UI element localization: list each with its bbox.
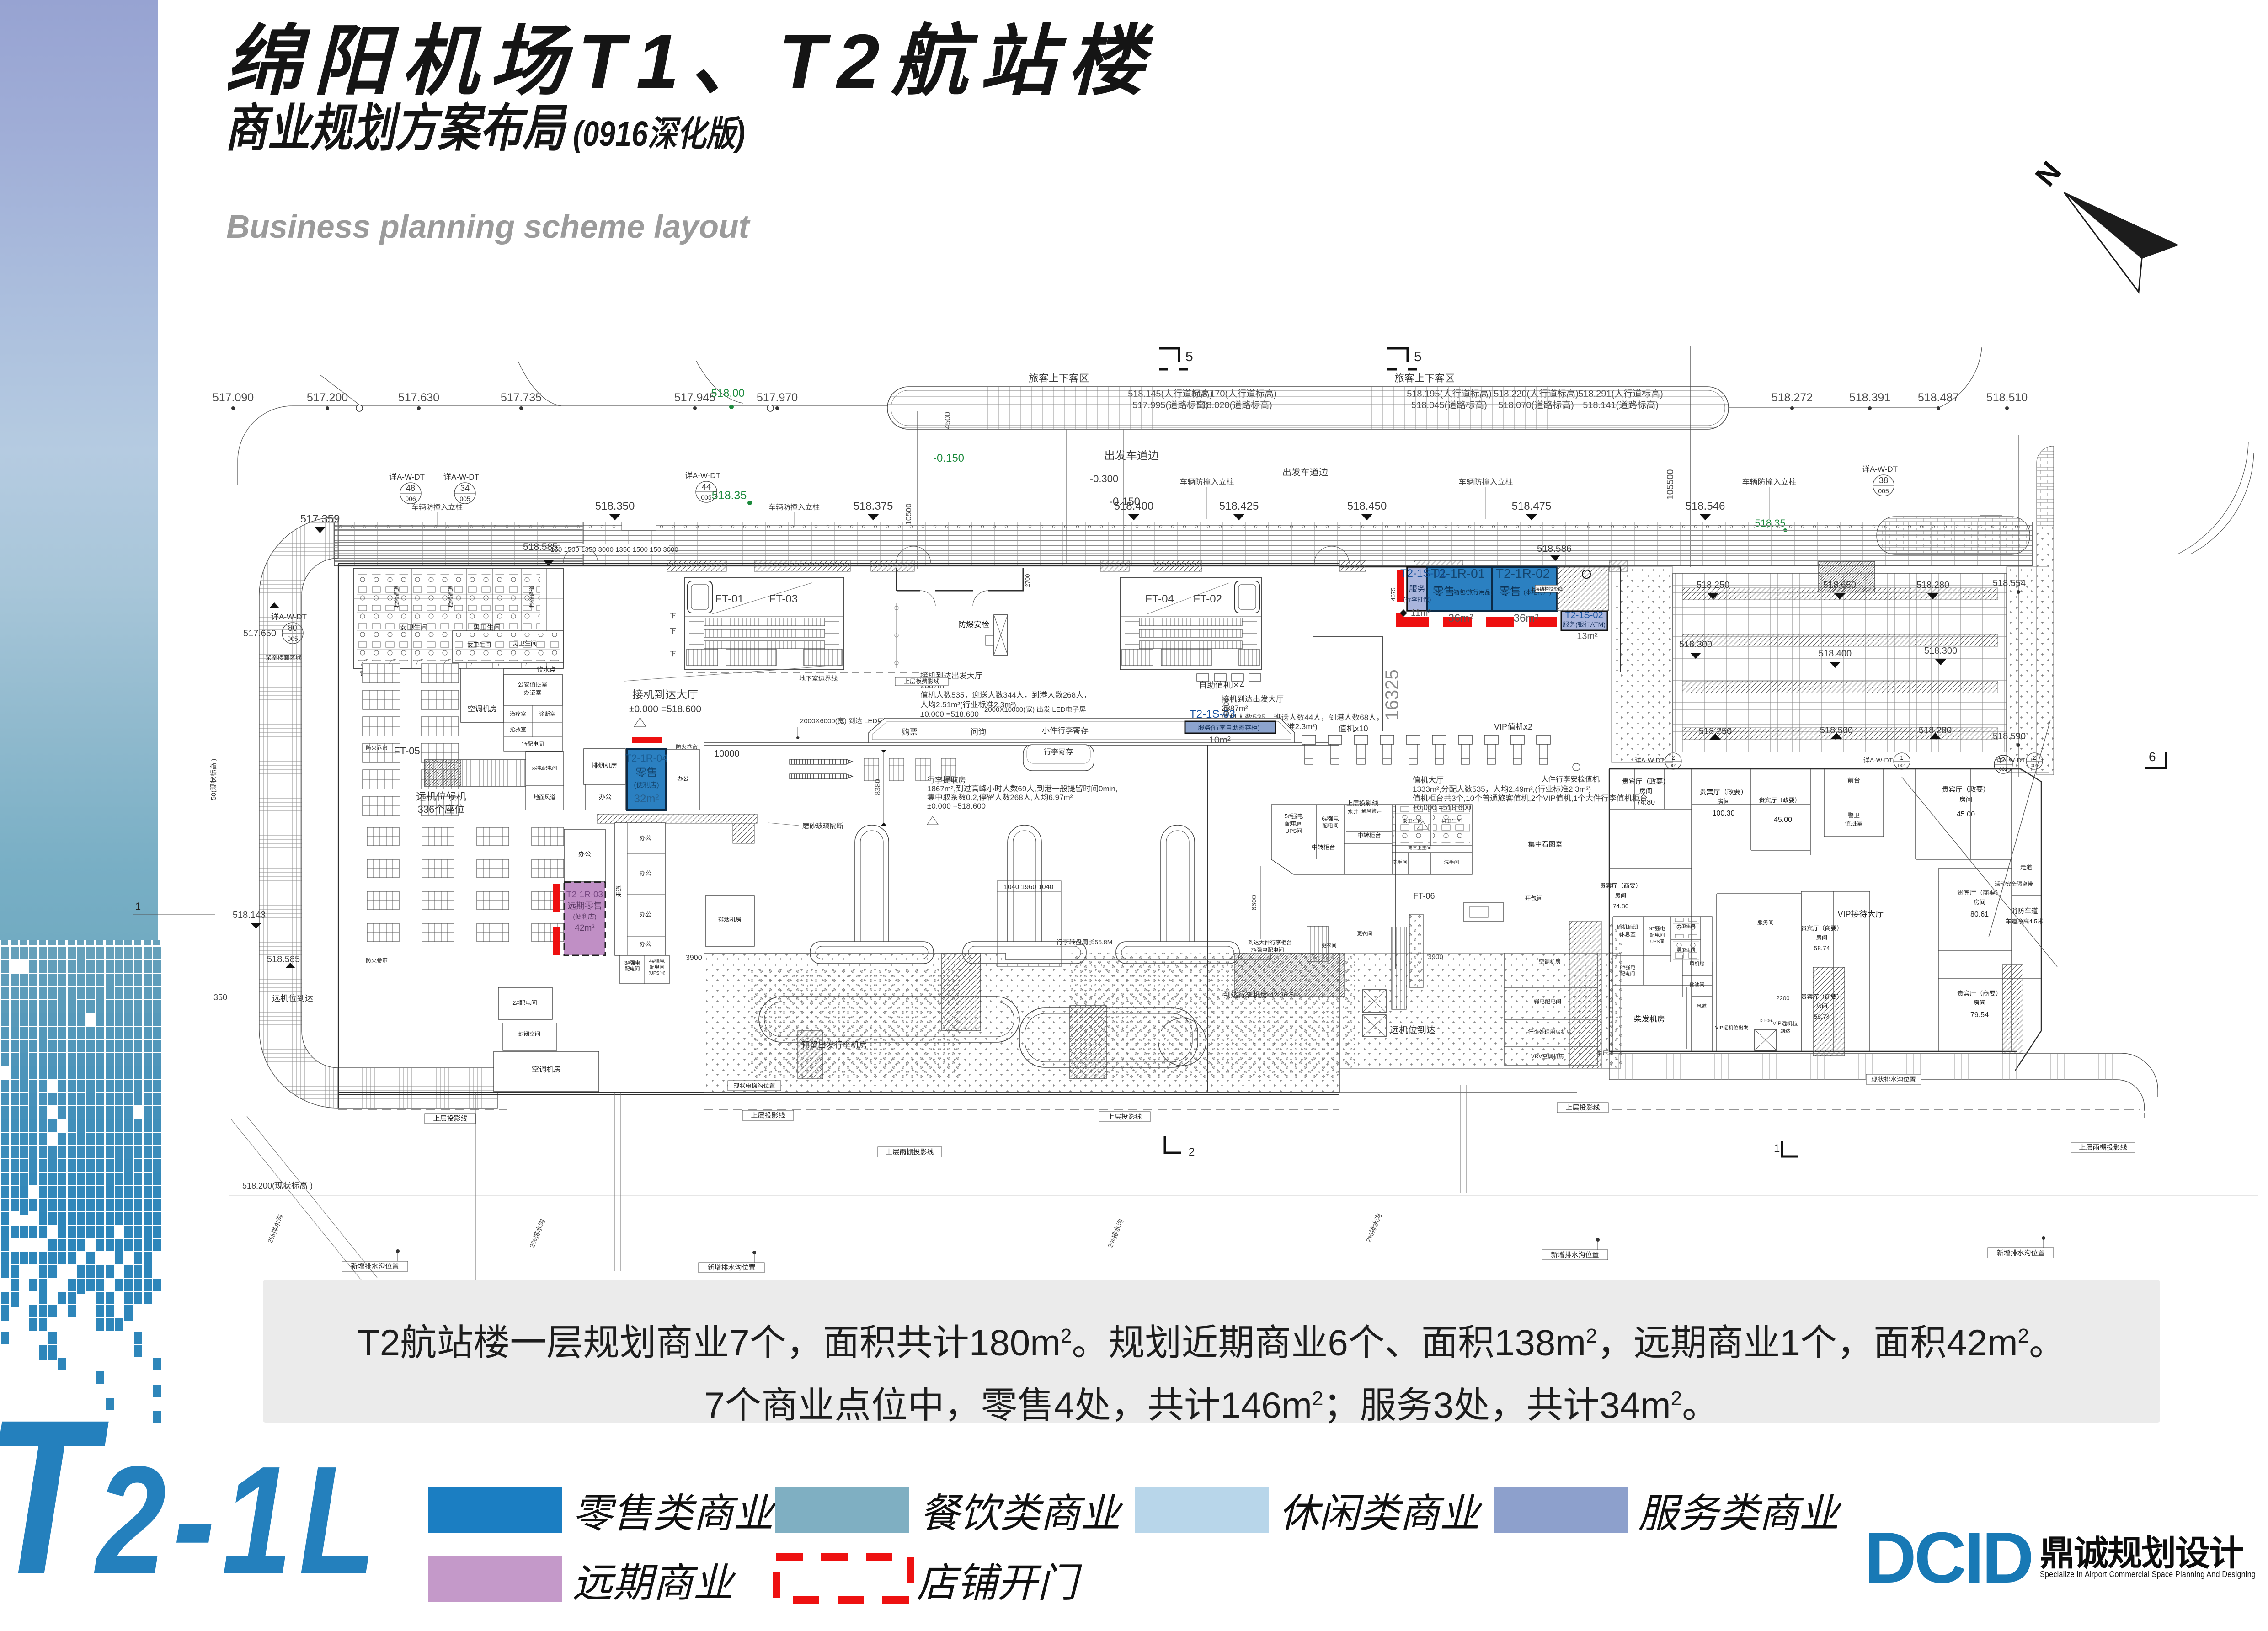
svg-text:车辆防撞入立柱: 车辆防撞入立柱 [1459, 478, 1513, 486]
svg-text:详A-W-DT: 详A-W-DT [1996, 757, 2026, 764]
svg-text:150 1500 1350 3000 1350 1500 1: 150 1500 1350 3000 1350 1500 150 3000 [550, 546, 678, 554]
svg-text:饮水点: 饮水点 [537, 666, 556, 673]
svg-text:到达: 到达 [1780, 1028, 1790, 1034]
svg-text:34: 34 [460, 484, 470, 493]
svg-text:下: 下 [670, 627, 676, 634]
svg-text:配电间: 配电间 [1322, 822, 1339, 829]
svg-text:上层板费影线: 上层板费影线 [904, 678, 939, 685]
svg-text:74.80: 74.80 [1612, 902, 1628, 910]
svg-text:58.74: 58.74 [1814, 944, 1830, 952]
svg-text:518.487: 518.487 [1918, 391, 1959, 404]
svg-text:518.450: 518.450 [1347, 500, 1387, 512]
svg-text:房间: 房间 [1639, 787, 1652, 794]
svg-text:±0.000 =518.600: ±0.000 =518.600 [629, 704, 701, 714]
svg-text:治疗室: 治疗室 [510, 711, 526, 717]
svg-text:518.554: 518.554 [1993, 578, 2026, 588]
svg-text:贵宾厅（商要）: 贵宾厅（商要） [1957, 889, 2002, 896]
svg-text:上层投影线: 上层投影线 [1107, 1113, 1142, 1121]
svg-text:2: 2 [2033, 754, 2036, 761]
svg-text:新增排水沟位置: 新增排水沟位置 [1996, 1249, 2044, 1257]
svg-text:42m²: 42m² [575, 923, 594, 933]
svg-text:D01: D01 [1898, 763, 1906, 768]
svg-text:517.945: 517.945 [674, 391, 715, 404]
svg-text:5: 5 [1185, 349, 1193, 364]
svg-text:办公: 办公 [640, 941, 651, 948]
svg-text:T2-1R-01: T2-1R-01 [1431, 566, 1485, 581]
svg-text:自助值机区4: 自助值机区4 [1199, 681, 1244, 690]
svg-text:风机房: 风机房 [1690, 961, 1705, 967]
svg-text:UPS间: UPS间 [1650, 939, 1665, 944]
svg-text:6600: 6600 [1250, 895, 1258, 910]
svg-text:1867m²,到过高峰小时人数69人,到港一般提留时间0mi: 1867m²,到过高峰小时人数69人,到港一般提留时间0min, [927, 784, 1118, 793]
svg-text:车辆防撞入立柱: 车辆防撞入立柱 [768, 503, 820, 512]
svg-text:2#配电间: 2#配电间 [512, 999, 537, 1006]
svg-text:T2-1R-03: T2-1R-03 [566, 890, 603, 900]
svg-text:80.61: 80.61 [1970, 911, 1989, 918]
svg-text:办公: 办公 [578, 850, 591, 858]
svg-text:配电间: 配电间 [650, 964, 665, 970]
svg-text:到达行李机房 42.36.5m: 到达行李机房 42.36.5m [1223, 991, 1300, 999]
svg-text:VIP远机位: VIP远机位 [1772, 1020, 1798, 1027]
svg-text:房间: 房间 [1717, 798, 1730, 805]
svg-text:详A-W-DT: 详A-W-DT [389, 473, 425, 481]
svg-text:10000: 10000 [714, 749, 740, 759]
svg-text:地下室边界线: 地下室边界线 [799, 675, 838, 682]
svg-text:上层投影线: 上层投影线 [1346, 800, 1378, 807]
svg-text:45.00: 45.00 [1957, 810, 1975, 818]
svg-text:±0.000 =518.600: ±0.000 =518.600 [927, 802, 986, 810]
svg-text:男卫生间: 男卫生间 [1677, 948, 1695, 953]
svg-text:磨砂玻璃隔断: 磨砂玻璃隔断 [802, 822, 843, 830]
svg-text:开包间: 开包间 [1525, 895, 1542, 902]
svg-text:UPS间: UPS间 [1286, 828, 1302, 834]
svg-text:1333m²,分配人数535，人均2.49m²,(行业标准2: 1333m²,分配人数535，人均2.49m²,(行业标准2.3m²) [1413, 785, 1591, 794]
svg-text:3#强电: 3#强电 [624, 960, 640, 966]
svg-text:洗手间: 洗手间 [1393, 859, 1408, 865]
svg-text:风道: 风道 [1697, 1003, 1707, 1009]
svg-text:58.74: 58.74 [1814, 1013, 1830, 1020]
svg-text:11m²: 11m² [1411, 608, 1431, 618]
svg-text:45.00: 45.00 [1774, 816, 1792, 824]
svg-text:地面风道: 地面风道 [534, 794, 555, 800]
svg-text:接机到达出发大厅: 接机到达出发大厅 [1222, 695, 1284, 704]
svg-text:行李转盘周长55.8M: 行李转盘周长55.8M [1057, 938, 1113, 946]
svg-text:现状排水沟位置: 现状排水沟位置 [1871, 1076, 1916, 1083]
svg-text:4#强电: 4#强电 [649, 958, 665, 964]
svg-text:2200: 2200 [1777, 995, 1790, 1002]
svg-text:下: 下 [670, 612, 676, 619]
svg-text:VIP远机位出发: VIP远机位出发 [1715, 1025, 1749, 1031]
svg-text:房间: 房间 [1816, 1003, 1827, 1009]
svg-text:抢救室: 抢救室 [510, 726, 526, 733]
svg-text:2%排水沟: 2%排水沟 [1106, 1218, 1125, 1249]
svg-text:上层投影线: 上层投影线 [751, 1112, 785, 1119]
svg-text:活动安全隔离带: 活动安全隔离带 [1995, 881, 2033, 887]
svg-text:房间: 房间 [1974, 899, 1985, 906]
svg-text:9#强电: 9#强电 [1649, 926, 1665, 932]
svg-text:VIP接待大厅: VIP接待大厅 [1837, 910, 1884, 919]
svg-text:005: 005 [701, 494, 712, 501]
svg-text:预留出发行李机房: 预留出发行李机房 [801, 1040, 867, 1050]
svg-text:贵宾厅（政要）: 贵宾厅（政要） [1622, 778, 1670, 786]
svg-text:办证室: 办证室 [523, 689, 541, 696]
svg-text:FT-02: FT-02 [1193, 593, 1222, 605]
svg-text:350: 350 [213, 993, 227, 1002]
svg-text:排烟机房: 排烟机房 [718, 916, 742, 923]
svg-text:远期零售: 远期零售 [567, 901, 602, 911]
svg-text:通风管井: 通风管井 [1361, 808, 1382, 814]
svg-text:车辆防撞入立柱: 车辆防撞入立柱 [1180, 478, 1234, 486]
svg-text:上层雨棚投影线: 上层雨棚投影线 [2079, 1144, 2127, 1151]
svg-text:518.300: 518.300 [1679, 640, 1712, 650]
svg-text:新增排水沟位置: 新增排水沟位置 [351, 1263, 399, 1270]
svg-text:36m²: 36m² [1448, 612, 1473, 624]
svg-text:517.735: 517.735 [501, 391, 542, 404]
svg-text:4500: 4500 [943, 412, 952, 429]
svg-text:518.546: 518.546 [1686, 500, 1725, 512]
svg-text:6: 6 [2149, 750, 2156, 764]
svg-text:上层结构投影线: 上层结构投影线 [1531, 586, 1563, 592]
svg-text:柴发机房: 柴发机房 [1634, 1015, 1665, 1023]
svg-text:中转柜台: 中转柜台 [1357, 832, 1381, 839]
svg-text:005: 005 [1878, 487, 1889, 495]
svg-text:上层投影线: 上层投影线 [433, 1115, 467, 1123]
svg-text:车辆防撞入立柱: 车辆防撞入立柱 [411, 503, 463, 512]
svg-text:警卫: 警卫 [1848, 812, 1860, 819]
svg-text:走道: 走道 [2020, 864, 2032, 871]
svg-text:办公: 办公 [640, 835, 651, 842]
svg-text:贵宾厅（商要）: 贵宾厅（商要） [1801, 925, 1842, 932]
svg-text:服务间: 服务间 [1757, 919, 1774, 926]
svg-text:T2-1R-04: T2-1R-04 [625, 752, 668, 764]
svg-text:44: 44 [702, 482, 711, 491]
svg-text:贵宾厅（商要）: 贵宾厅（商要） [1801, 993, 1842, 1000]
svg-text:详A-W-DT: 详A-W-DT [1863, 757, 1893, 764]
svg-text:储油间: 储油间 [1690, 982, 1705, 988]
svg-text:诊断室: 诊断室 [539, 711, 555, 717]
svg-text:房间: 房间 [1974, 999, 1985, 1006]
svg-text:5: 5 [1414, 349, 1422, 364]
svg-text:2%排水沟: 2%排水沟 [1365, 1212, 1383, 1243]
svg-text:零售: 零售 [635, 767, 657, 779]
svg-text:8380: 8380 [874, 779, 882, 795]
svg-text:16325: 16325 [1382, 669, 1402, 720]
svg-text:(便利店): (便利店) [634, 781, 659, 789]
svg-text:1: 1 [1774, 1142, 1780, 1155]
svg-text:518.143: 518.143 [233, 910, 266, 920]
svg-text:房间: 房间 [1615, 892, 1626, 899]
svg-text:配电间: 配电间 [1285, 820, 1302, 827]
svg-text:零售: 零售 [1499, 586, 1521, 598]
svg-text:517.200: 517.200 [307, 391, 348, 404]
svg-text:服务(行李自助寄存柜): 服务(行李自助寄存柜) [1198, 724, 1259, 731]
svg-text:远机位到达: 远机位到达 [1390, 1025, 1436, 1035]
svg-text:弱电配电间: 弱电配电间 [532, 765, 557, 771]
svg-text:办公: 办公 [599, 793, 612, 800]
svg-text:1: 1 [135, 901, 141, 912]
svg-text:远机位到达: 远机位到达 [272, 994, 313, 1003]
svg-text:±0.000 =518.600: ±0.000 =518.600 [920, 710, 979, 719]
svg-text:FT-06: FT-06 [1413, 891, 1435, 901]
svg-text:6#强电: 6#强电 [1322, 815, 1339, 822]
svg-text:006: 006 [405, 495, 416, 502]
svg-text:518.00: 518.00 [711, 387, 744, 400]
svg-text:(行李打包): (行李打包) [1403, 596, 1431, 603]
svg-text:T2-1R-02: T2-1R-02 [1496, 566, 1550, 581]
svg-text:4675: 4675 [1390, 588, 1397, 601]
svg-text:2700: 2700 [1024, 574, 1031, 587]
svg-text:-0.150: -0.150 [933, 452, 964, 464]
svg-text:517.630: 517.630 [398, 391, 439, 404]
svg-text:配电间: 配电间 [1650, 932, 1665, 938]
svg-text:女卫生间: 女卫生间 [467, 641, 491, 648]
svg-text:小件行李寄存: 小件行李寄存 [1042, 726, 1089, 735]
svg-text:更衣间: 更衣间 [1322, 943, 1337, 949]
svg-text:518.375: 518.375 [854, 500, 893, 512]
svg-text:值班室: 值班室 [1845, 820, 1862, 827]
svg-text:518.250: 518.250 [1697, 580, 1729, 590]
svg-text:10m²: 10m² [1209, 735, 1231, 746]
svg-text:FT-01: FT-01 [715, 593, 744, 605]
svg-text:消防车道: 消防车道 [2011, 907, 2038, 915]
svg-text:集中看图室: 集中看图室 [1528, 841, 1562, 848]
svg-text:(箱包/旅行用品): (箱包/旅行用品) [1452, 589, 1493, 596]
svg-text:配电间: 配电间 [625, 966, 640, 972]
svg-text:T2-1S-02: T2-1S-02 [1565, 610, 1603, 620]
svg-text:518.590: 518.590 [1993, 731, 2026, 741]
svg-text:100.30: 100.30 [1713, 810, 1735, 817]
svg-text:518.585: 518.585 [267, 954, 300, 965]
svg-text:5#强电: 5#强电 [1285, 813, 1303, 820]
svg-text:大件行李安检值机: 大件行李安检值机 [1541, 775, 1600, 784]
svg-text:公安值班室: 公安值班室 [518, 681, 547, 688]
svg-text:贵宾厅（政要）: 贵宾厅（政要） [1942, 786, 1990, 794]
svg-text:出发车道边: 出发车道边 [1282, 468, 1328, 478]
svg-text:36m²: 36m² [1514, 612, 1539, 624]
svg-text:2: 2 [1189, 1146, 1195, 1158]
svg-text:旅客上下客区: 旅客上下客区 [1029, 373, 1089, 384]
svg-text:女卫生间: 女卫生间 [400, 624, 427, 632]
svg-text:518.272: 518.272 [1772, 391, 1813, 404]
svg-text:接机到达大厅: 接机到达大厅 [632, 689, 698, 701]
svg-text:洗手间: 洗手间 [1444, 859, 1459, 865]
svg-text:值机柜台共3个,10个普通旅客值机,2个VIP值机,1个大件: 值机柜台共3个,10个普通旅客值机,2个VIP值机,1个大件行李值机柜台 [1413, 794, 1648, 803]
svg-text:详A-W-DT: 详A-W-DT [1862, 465, 1898, 474]
svg-text:-0.300: -0.300 [1090, 473, 1118, 485]
svg-text:检修通道: 检修通道 [448, 586, 454, 608]
svg-text:房间: 房间 [1816, 934, 1827, 941]
svg-text:贵宾厅（政要）: 贵宾厅（政要） [1759, 797, 1800, 804]
svg-text:值机人数535，迎送人数344人，到港人数268人，: 值机人数535，迎送人数344人，到港人数268人， [920, 691, 1091, 699]
svg-text:贵宾厅（商要）: 贵宾厅（商要） [1957, 990, 2002, 997]
svg-text:7#强电配电间: 7#强电配电间 [1250, 947, 1284, 953]
svg-text:房间: 房间 [1959, 796, 1972, 803]
svg-text:新增排水沟位置: 新增排水沟位置 [707, 1264, 755, 1272]
svg-text:车辆防撞入立柱: 车辆防撞入立柱 [1742, 478, 1797, 486]
svg-text:1: 1 [1900, 754, 1903, 761]
svg-text:518.280: 518.280 [1916, 580, 1949, 590]
svg-text:行李寄存: 行李寄存 [1044, 748, 1073, 756]
svg-text:2: 2 [1671, 754, 1675, 761]
svg-text:(便利店): (便利店) [573, 913, 596, 920]
svg-text:更衣间: 更衣间 [1357, 931, 1372, 937]
svg-text:336个座位: 336个座位 [418, 804, 465, 815]
svg-text:办公: 办公 [677, 775, 689, 782]
svg-text:防爆安检: 防爆安检 [958, 620, 989, 629]
svg-text:(UPS间): (UPS间) [648, 970, 665, 976]
svg-text:集中取系数0.2,停留人数268人,人均6.97m²: 集中取系数0.2,停留人数268人,人均6.97m² [927, 793, 1073, 802]
svg-text:上层投影线: 上层投影线 [1565, 1104, 1600, 1112]
svg-text:9300: 9300 [1222, 698, 1231, 715]
svg-text:排烟机房: 排烟机房 [592, 762, 617, 769]
svg-text:1040 1960 1040: 1040 1960 1040 [1004, 883, 1053, 891]
svg-text:办公: 办公 [640, 911, 651, 918]
svg-text:2000X10000(宽) 出发 LED电子屏: 2000X10000(宽) 出发 LED电子屏 [984, 706, 1086, 714]
svg-text:走道: 走道 [615, 885, 622, 897]
svg-text:518.400: 518.400 [1819, 649, 1852, 659]
svg-text:517.650: 517.650 [243, 629, 276, 639]
svg-text:旅客上下客区: 旅客上下客区 [1394, 373, 1455, 384]
svg-text:上层雨棚投影线: 上层雨棚投影线 [886, 1148, 934, 1156]
svg-text:检修通道: 检修通道 [394, 586, 400, 608]
svg-text:水井: 水井 [1348, 809, 1359, 815]
svg-text:518.586: 518.586 [1537, 544, 1572, 554]
svg-text:检修通道: 检修通道 [529, 586, 535, 608]
svg-text:518.425: 518.425 [1219, 500, 1259, 512]
svg-text:购票: 购票 [902, 728, 918, 736]
svg-text:001: 001 [1670, 763, 1677, 768]
svg-text:女卫生间: 女卫生间 [1403, 818, 1423, 824]
svg-text:517.090: 517.090 [213, 391, 254, 404]
svg-text:517.970: 517.970 [757, 391, 798, 404]
svg-text:518.200(现状标高 ): 518.200(现状标高 ) [242, 1181, 313, 1190]
svg-text:防火卷帘: 防火卷帘 [366, 745, 388, 751]
svg-text:518.391: 518.391 [1849, 391, 1890, 404]
svg-text:男卫生间: 男卫生间 [1441, 818, 1462, 824]
svg-text:问询: 问询 [971, 728, 986, 736]
svg-text:女卫生间: 女卫生间 [1677, 924, 1695, 929]
svg-text:详A-W-DT: 详A-W-DT [1635, 757, 1665, 764]
svg-text:中转柜台: 中转柜台 [1312, 844, 1335, 851]
svg-text:服务(银行ATM): 服务(银行ATM) [1563, 621, 1606, 628]
svg-text:现状电梯沟位置: 现状电梯沟位置 [733, 1082, 775, 1089]
svg-text:13m²: 13m² [1577, 631, 1598, 641]
svg-text:50(现状标高 ): 50(现状标高 ) [210, 759, 218, 800]
svg-text:518.300: 518.300 [1924, 646, 1957, 656]
svg-text:贵宾厅（商要）: 贵宾厅（商要） [1600, 882, 1641, 889]
svg-text:518.350: 518.350 [595, 500, 635, 512]
svg-text:男卫生间: 男卫生间 [513, 640, 537, 647]
svg-text:2%排水沟: 2%排水沟 [528, 1218, 547, 1249]
svg-text:办公: 办公 [640, 870, 651, 877]
svg-text:518.650: 518.650 [1823, 580, 1856, 590]
svg-text:前台: 前台 [1847, 777, 1860, 784]
svg-text:远机位候机: 远机位候机 [416, 791, 466, 802]
svg-text:车道净高4.5米: 车道净高4.5米 [2005, 918, 2043, 925]
svg-text:新增排水沟位置: 新增排水沟位置 [1551, 1251, 1599, 1259]
svg-text:详A-W-DT: 详A-W-DT [685, 471, 720, 480]
svg-text:105500: 105500 [1665, 469, 1676, 500]
svg-text:005: 005 [459, 495, 470, 502]
svg-text:FT-05: FT-05 [394, 745, 420, 757]
svg-text:出发车道边: 出发车道边 [1104, 450, 1159, 462]
svg-text:防火卷帘: 防火卷帘 [366, 957, 388, 964]
svg-text:第三卫生间: 第三卫生间 [1408, 845, 1431, 851]
svg-text:贵宾厅（政要）: 贵宾厅（政要） [1699, 789, 1747, 796]
svg-text:详A-W-DT: 详A-W-DT [443, 473, 479, 481]
svg-text:VIP值机x2: VIP值机x2 [1494, 722, 1532, 731]
svg-text:74.80: 74.80 [1637, 799, 1655, 806]
svg-text:32m²: 32m² [634, 793, 659, 805]
svg-text:518.510: 518.510 [1986, 391, 2028, 404]
svg-text:518.475: 518.475 [1512, 500, 1552, 512]
svg-text:2%排水沟: 2%排水沟 [266, 1213, 285, 1244]
svg-text:空调机房: 空调机房 [468, 705, 497, 713]
svg-text:行李提取房: 行李提取房 [927, 776, 966, 784]
svg-text:1#配电间: 1#配电间 [521, 741, 544, 747]
svg-text:下: 下 [670, 650, 676, 657]
svg-text:3900: 3900 [686, 954, 702, 962]
svg-text:服务: 服务 [1409, 584, 1425, 593]
svg-text:架空楼面区域: 架空楼面区域 [266, 654, 301, 661]
svg-text:值机大厅: 值机大厅 [1413, 776, 1444, 784]
svg-text:38: 38 [1879, 476, 1888, 485]
svg-text:DT-06: DT-06 [1759, 1018, 1772, 1023]
svg-text:48: 48 [406, 484, 415, 493]
svg-text:FT-03: FT-03 [769, 593, 798, 605]
svg-text:值机x10: 值机x10 [1338, 724, 1368, 733]
svg-text:封闭空间: 封闭空间 [518, 1031, 540, 1037]
svg-text:FT-04: FT-04 [1145, 593, 1174, 605]
svg-text:518.400: 518.400 [1114, 500, 1154, 512]
svg-text:空调机房: 空调机房 [532, 1066, 561, 1074]
svg-text:到达大件行李柜台: 到达大件行李柜台 [1248, 939, 1292, 946]
svg-text:79.54: 79.54 [1970, 1011, 1989, 1019]
